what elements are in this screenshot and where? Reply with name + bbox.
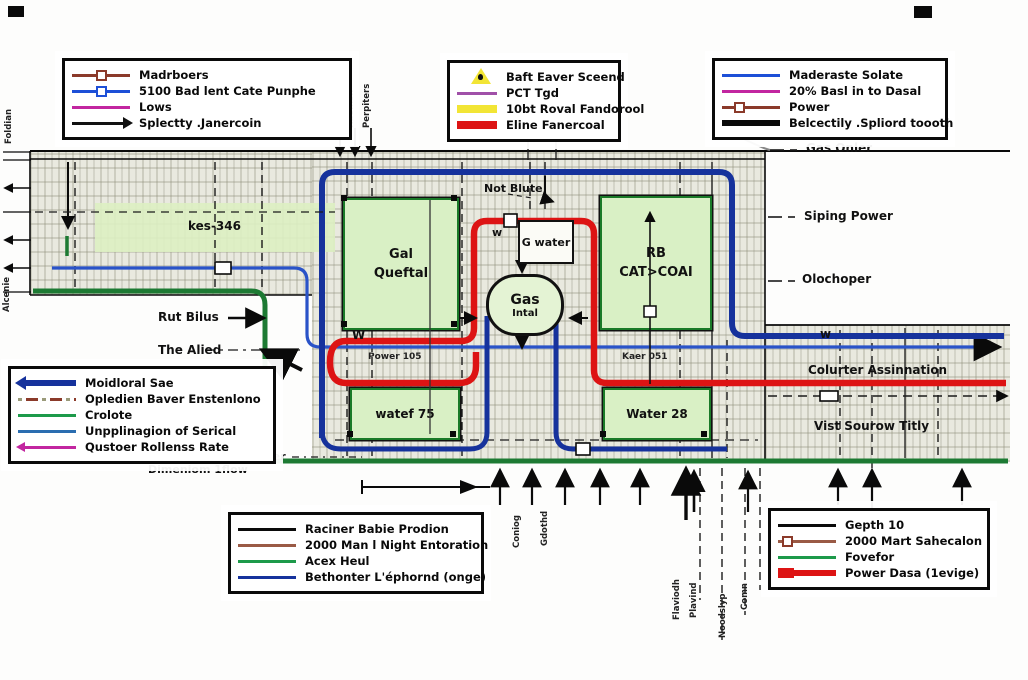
black-arrow-line-icon [72,117,130,129]
rut-bilus-label: Rut Bilus [158,310,219,324]
legend-top-left: Madrboers 5100 Bad lent Cate Punphe Lows… [62,58,352,140]
blue-thin-line-icon [18,425,76,437]
black-thick-line-icon [722,117,780,129]
brown-square-line-icon [72,69,130,81]
gas-onler-label: Gas Onler [806,141,872,155]
blue-line-icon [722,69,780,81]
legend-item: Opledien Baver Enstenlono [18,392,264,406]
dashed-brown-line-icon [18,393,76,405]
legend-label: Acex Heul [305,554,370,568]
legend-item: 20% Basl in to Dasal [722,84,936,98]
legend-item: Baft Eaver Sceend [457,70,609,84]
kaer-051-label: Kaer 051 [622,352,668,362]
legend-label: Bethonter L'éphornd (onge) [305,570,486,584]
vertical-label-alcenie: Alcenie [2,264,12,312]
olochoper-label: Olochoper [802,272,871,286]
legend-label: Maderaste Solate [789,68,903,82]
legend-label: Unpplinagion of Serical [85,424,236,438]
legend-label: 10bt Roval Fandorool [506,102,644,116]
legend-label: Baft Eaver Sceend [506,70,625,84]
red-thick-line-icon [778,567,836,579]
legend-item: Moidloral Sae [18,376,264,390]
legend-item: 2000 Man l Night Entoration [238,538,472,552]
magenta-line-icon [722,85,780,97]
legend-label: PCT Tgd [506,86,559,100]
legend-item: Acex Heul [238,554,472,568]
legend-top-right: Maderaste Solate 20% Basl in to Dasal Po… [712,58,948,140]
vertical-label-plavind: Plavind [689,558,699,618]
legend-label: 2000 Man l Night Entoration [305,538,488,552]
w-left-label: W [352,328,365,342]
power-105-label: Power 105 [368,352,422,362]
vertical-label-noodslyp: Noodslyp [718,558,728,638]
green-line-icon [18,409,76,421]
legend-item: Unpplinagion of Serical [18,424,264,438]
blue-line-icon [238,571,296,583]
legend-label: Power [789,100,829,114]
colurter-label: Colurter Assinnation [808,363,947,377]
siping-power-label: Siping Power [804,209,893,223]
vertical-label-comn: Comn [740,558,750,610]
legend-label: Fovefor [845,550,894,564]
legend-label: Moidloral Sae [85,376,174,390]
legend-label: Lows [139,100,172,114]
w-small-label: w [492,226,502,239]
legend-item: Eline Fanercoal [457,118,609,132]
kes-band-label: kes-346 [188,219,241,233]
legend-label: Raciner Babie Prodion [305,522,449,536]
not-blute-label: Not Blute [484,182,543,195]
legend-item: Belcectily .Spliord toooth [722,116,936,130]
vertical-label-flaviodh: Flaviodh [672,556,682,620]
legend-item: PCT Tgd [457,86,609,100]
magenta-arrow-left-icon [18,441,76,453]
legend-item: 5100 Bad lent Cate Punphe [72,84,340,98]
legend-label: Opledien Baver Enstenlono [85,392,261,406]
legend-item: Gepth 10 [778,518,978,532]
legend-item: 2000 Mart Sahecalon [778,534,978,548]
legend-label: Belcectily .Spliord toooth [789,116,953,130]
utility-site-diagram: Gal Queftal RB CAT>COAI watef 75 Water 2… [0,0,1028,680]
legend-top-middle: Baft Eaver Sceend PCT Tgd 10bt Roval Fan… [447,60,621,142]
magenta-line-icon [72,101,130,113]
vertical-label-coniog: Coniog [512,496,522,548]
legend-item: Maderaste Solate [722,68,936,82]
legend-label: 20% Basl in to Dasal [789,84,921,98]
legend-label: Qustoer Rollenss Rate [85,440,229,454]
legend-item: Bethonter L'éphornd (onge) [238,570,472,584]
green-line-icon [778,551,836,563]
legend-item: Crolote [18,408,264,422]
legend-bottom-middle: Raciner Babie Prodion 2000 Man l Night E… [228,512,484,594]
black-line-icon [778,519,836,531]
yellow-bar-icon [457,103,497,115]
dimeniom-label: Dimeniom 1flow [148,463,248,476]
vist-label: Vist Sourow Titly [814,419,929,433]
legend-item: Raciner Babie Prodion [238,522,472,536]
legend-item: Power Dasa (1evige) [778,566,978,580]
w-right-label: w [820,327,831,341]
black-line-icon [238,523,296,535]
blue-square-line-icon [72,85,130,97]
vertical-label-foldian: Foldian [4,96,14,144]
legend-label: Power Dasa (1evige) [845,566,979,580]
brown-square-line-icon [778,535,836,547]
legend-item: Qustoer Rollenss Rate [18,440,264,454]
legend-item: Madrboers [72,68,340,82]
red-bar-icon [457,119,497,131]
green-line-icon [238,555,296,567]
vertical-label-gdothd: Gdothd [540,490,550,546]
the-alied-label: The Alied [158,343,221,357]
legend-item: Power [722,100,936,114]
brown-square-line-icon [722,101,780,113]
purple-line-icon [457,87,497,99]
legend-item: Fovefor [778,550,978,564]
legend-mid-left: Moidloral Sae Opledien Baver Enstenlono … [8,366,276,464]
legend-item: Splectty .Janercoin [72,116,340,130]
brown-line-icon [238,539,296,551]
legend-label: 2000 Mart Sahecalon [845,534,982,548]
legend-label: Madrboers [139,68,209,82]
legend-label: Gepth 10 [845,518,904,532]
blue-arrow-left-icon [18,377,76,389]
warning-triangle-icon [457,70,497,84]
legend-label: Eline Fanercoal [506,118,605,132]
legend-label: Crolote [85,408,132,422]
legend-item: 10bt Roval Fandorool [457,102,609,116]
legend-label: Splectty .Janercoin [139,116,261,130]
legend-label: 5100 Bad lent Cate Punphe [139,84,316,98]
legend-item: Lows [72,100,340,114]
legend-bottom-right: Gepth 10 2000 Mart Sahecalon Fovefor Pow… [768,508,990,590]
vertical-label-perpiters: Perpiters [362,68,372,128]
